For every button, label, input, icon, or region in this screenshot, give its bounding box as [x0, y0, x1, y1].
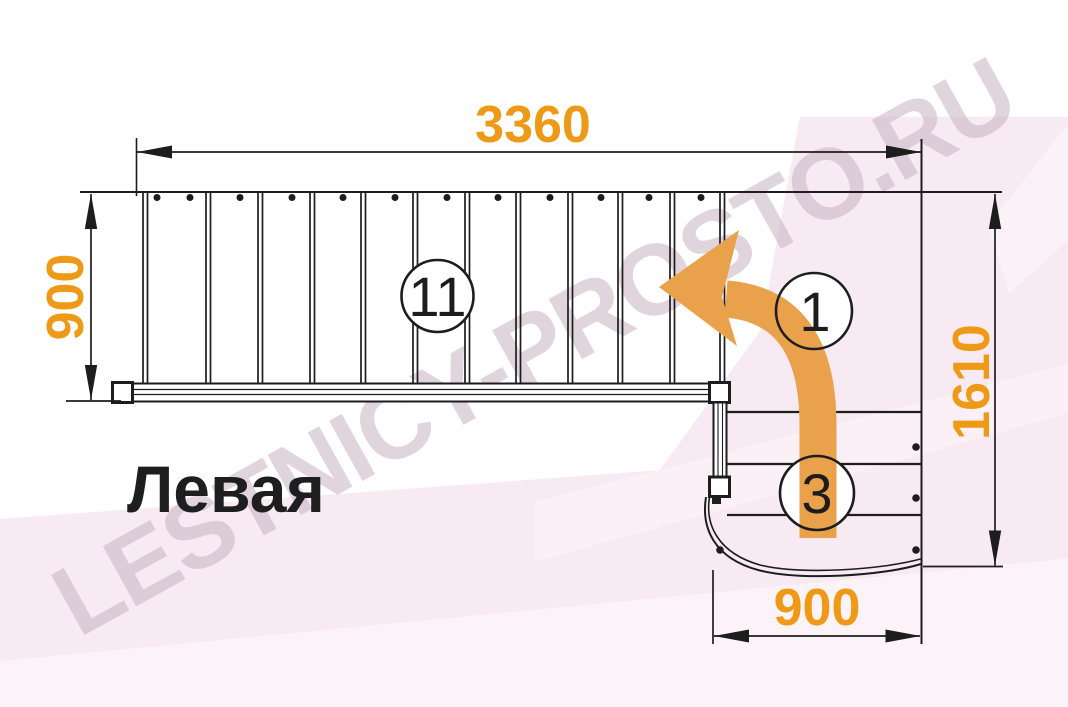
lower-flight-count-label: 3 — [801, 462, 832, 525]
dimension-1610-label: 1610 — [943, 324, 1001, 440]
staircase-plan-diagram: LESTNICY-PROSTO.RU — [0, 0, 1068, 707]
dimension-900-bottom-label: 900 — [774, 579, 861, 637]
dimension-3360-label: 3360 — [475, 96, 591, 154]
dim-arrow-up-icon — [85, 194, 97, 229]
dim-arrow-down-icon — [85, 365, 97, 400]
dimension-900-left-label: 900 — [37, 254, 95, 341]
stringer-left-cap — [113, 383, 133, 403]
dim-arrow-down-icon — [989, 531, 1001, 566]
dim-arrow-left-icon — [137, 146, 172, 159]
upper-flight-count-label: 11 — [408, 265, 466, 328]
turn-step-label: 1 — [799, 280, 830, 343]
newel-post — [710, 403, 730, 505]
dim-arrow-up-icon — [989, 194, 1001, 229]
stringer-band — [112, 383, 730, 403]
structure-lines — [66, 138, 1003, 644]
page-title: Левая — [127, 452, 325, 526]
dim-arrow-left-icon — [714, 630, 749, 643]
dim-arrow-right-icon — [886, 630, 921, 643]
newel-post-foot — [712, 496, 721, 504]
dim-arrow-right-icon — [886, 146, 921, 159]
stringer-right-cap — [710, 383, 730, 403]
plan-linework: 11 1 3 3360 900 1610 900 Левая — [0, 0, 1068, 707]
